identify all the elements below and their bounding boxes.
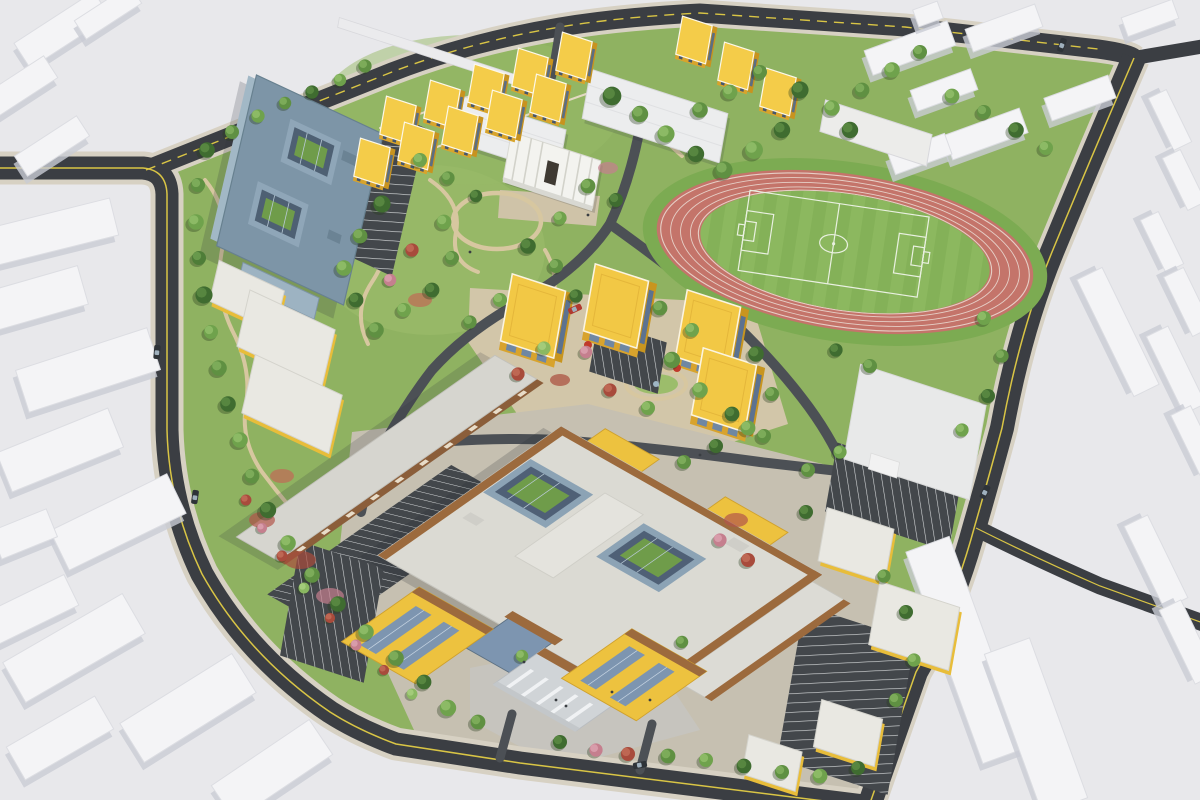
flower-bed (270, 469, 294, 483)
render-canvas (0, 0, 1200, 800)
flower-bed (724, 513, 748, 527)
person (469, 251, 472, 254)
campus-aerial-render (0, 0, 1200, 800)
person (611, 691, 614, 694)
flower-bed (284, 551, 316, 569)
person (555, 699, 558, 702)
person (649, 699, 652, 702)
car (153, 345, 161, 360)
person (587, 214, 590, 217)
person (565, 705, 568, 708)
flower-bed (550, 374, 570, 386)
fountain (653, 381, 659, 387)
person (699, 454, 702, 457)
flower-bed (598, 162, 618, 174)
person (523, 661, 526, 664)
